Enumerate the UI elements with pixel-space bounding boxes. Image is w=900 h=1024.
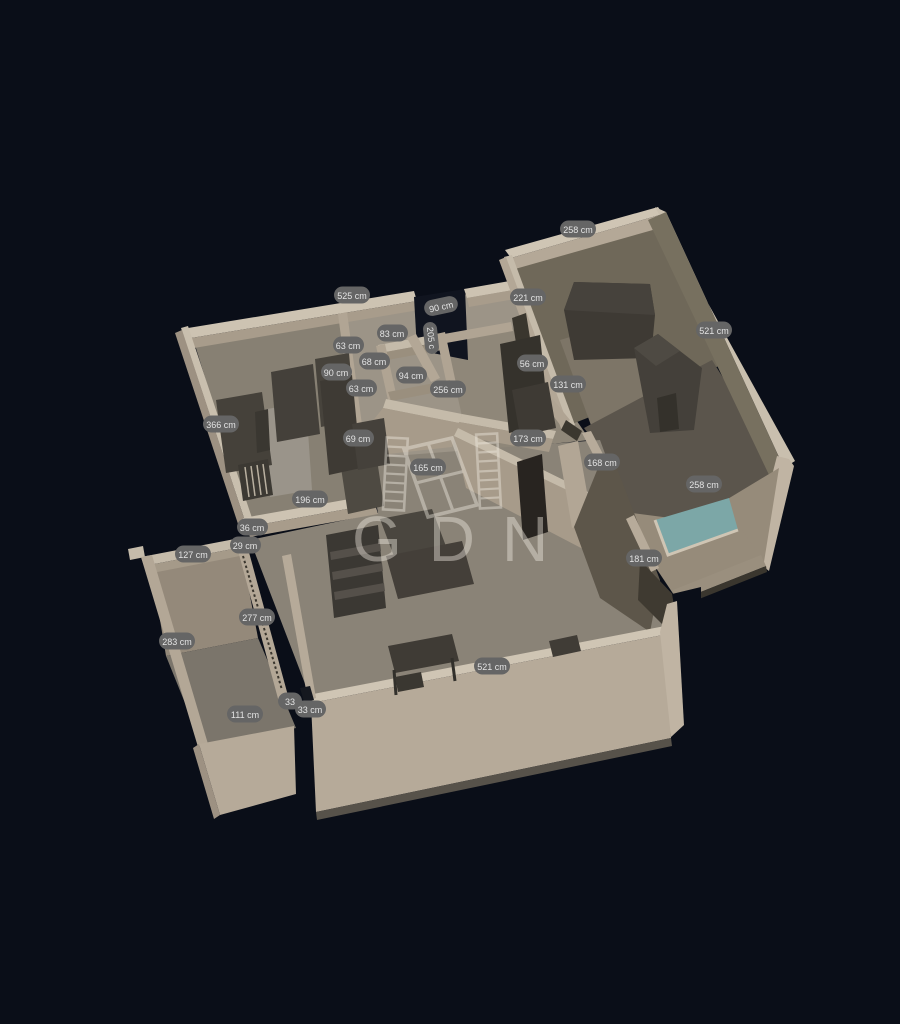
svg-text:63 cm: 63 cm [349, 384, 374, 394]
svg-text:83 cm: 83 cm [380, 329, 405, 339]
svg-text:63 cm: 63 cm [336, 341, 361, 351]
svg-text:165 cm: 165 cm [413, 463, 443, 473]
svg-text:69 cm: 69 cm [346, 434, 371, 444]
svg-text:221 cm: 221 cm [513, 293, 543, 303]
svg-text:196 cm: 196 cm [295, 495, 325, 505]
svg-text:90 cm: 90 cm [324, 368, 349, 378]
svg-text:256 cm: 256 cm [433, 385, 463, 395]
svg-text:258 cm: 258 cm [563, 225, 593, 235]
svg-text:127 cm: 127 cm [178, 550, 208, 560]
svg-text:111 cm: 111 cm [231, 710, 259, 720]
svg-text:68 cm: 68 cm [362, 357, 387, 367]
svg-text:33 cm: 33 cm [298, 705, 323, 715]
svg-text:521 cm: 521 cm [477, 662, 507, 672]
svg-text:181 cm: 181 cm [629, 554, 659, 564]
svg-text:258 cm: 258 cm [689, 480, 719, 490]
svg-text:GDN: GDN [352, 503, 575, 575]
svg-text:173 cm: 173 cm [513, 434, 543, 444]
svg-text:277 cm: 277 cm [242, 613, 272, 623]
svg-text:56 cm: 56 cm [520, 359, 545, 369]
svg-text:36 cm: 36 cm [240, 523, 265, 533]
svg-text:168 cm: 168 cm [587, 458, 617, 468]
svg-text:33: 33 [285, 697, 295, 707]
svg-text:131 cm: 131 cm [553, 380, 583, 390]
svg-text:94 cm: 94 cm [399, 371, 424, 381]
svg-text:283 cm: 283 cm [162, 637, 192, 647]
svg-text:525 cm: 525 cm [337, 291, 367, 301]
svg-text:521 cm: 521 cm [699, 326, 729, 336]
svg-text:29 cm: 29 cm [233, 541, 258, 551]
svg-text:366 cm: 366 cm [206, 420, 236, 430]
